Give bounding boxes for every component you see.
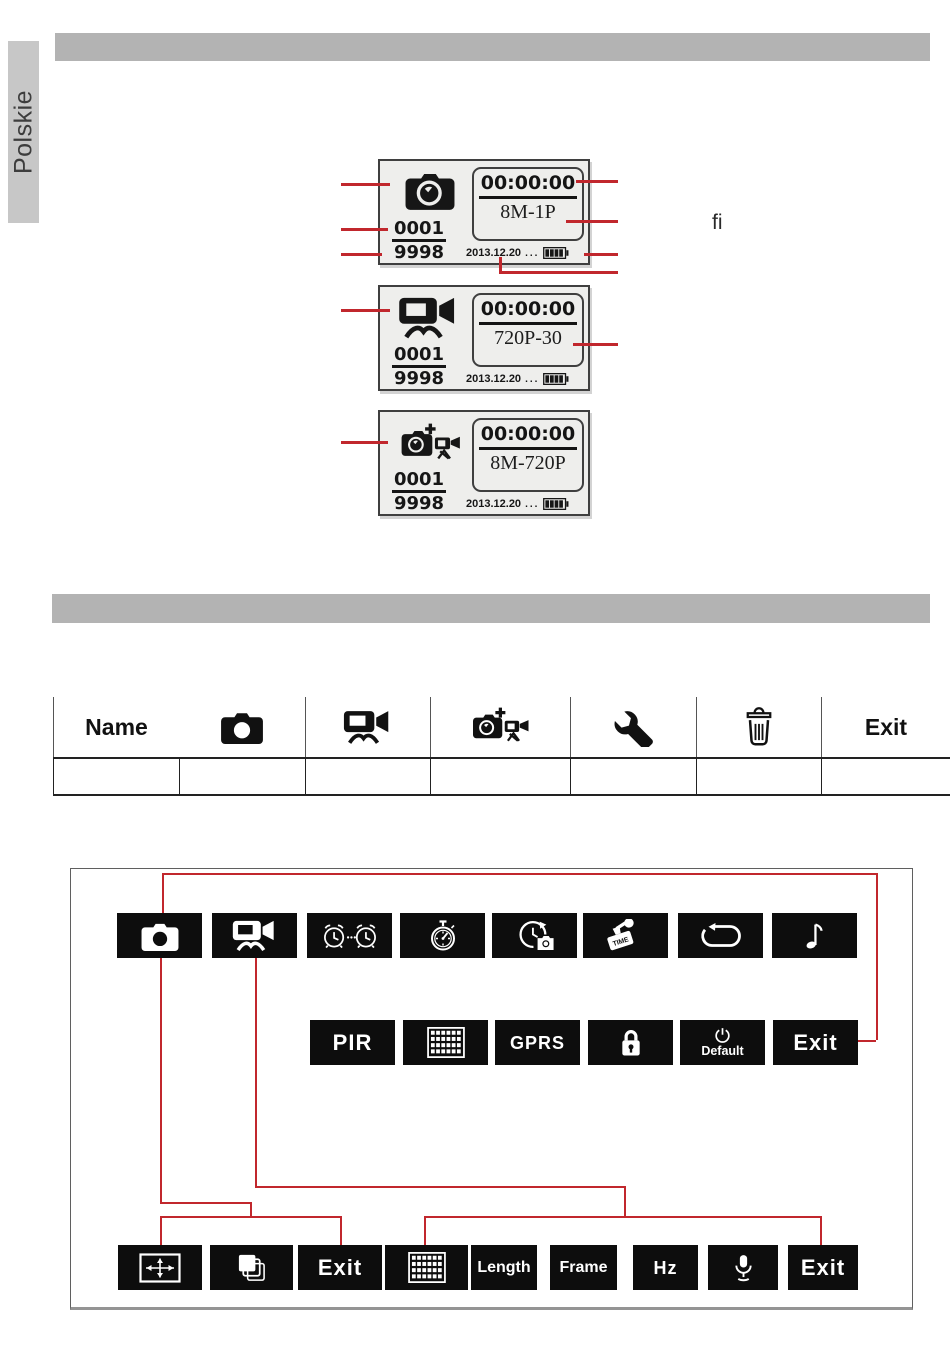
submenu-burst-button [210,1245,293,1290]
menu-photo-button [117,913,202,958]
connector-line [255,1186,625,1188]
power-icon [714,1027,731,1044]
image-counter: 0001 9998 [392,219,446,262]
time-display: 00:00:00 [481,423,576,445]
table-header-settings [570,697,696,757]
alarm-clocks-icon [322,921,378,950]
submenu-frame-button: Frame [550,1245,617,1290]
table-cell [821,759,950,794]
connector-line [255,958,257,1186]
column-label: Exit [865,714,907,741]
table-cell [570,759,696,794]
wrench-icon [613,707,655,747]
info-box: 00:00:00 8M-1P [472,167,584,241]
table-cell [430,759,570,794]
date-display: 2013.12.20 [466,498,521,510]
info-box: 00:00:00 720P-30 [472,293,584,367]
menu-timer-button [400,913,485,958]
camera-icon [219,710,265,744]
grid-icon [408,1252,446,1283]
connector-line [162,873,876,875]
connector-line [876,873,878,1040]
battery-icon [543,247,569,259]
submenu-exit2-button: Exit [788,1245,858,1290]
camera-plus-video-icon [394,423,468,465]
trash-icon [742,707,776,747]
camera-icon [404,170,456,210]
tile-label: Hz [654,1259,678,1277]
battery-icon [543,498,569,510]
callout-line [341,253,382,256]
connector-line [160,1202,251,1204]
table-header-delete [696,697,821,757]
submenu-timetable-button [385,1245,468,1290]
burst-icon [236,1252,267,1283]
table-header-exit: Exit [821,697,950,757]
table-cell [53,759,179,794]
tile-label: Frame [559,1260,607,1276]
callout-line [566,220,618,223]
music-note-icon [805,921,824,950]
loop-icon [700,923,742,949]
menu-timestamp-button: TIME [583,913,668,958]
counter-total: 9998 [392,242,446,262]
menu-cycle-button [678,913,763,958]
callout-line [341,441,388,444]
video-camera-icon [397,294,461,341]
mode-display: 8M-1P [500,201,556,224]
section-bar-top [55,33,930,61]
connector-line [340,1216,342,1245]
camera-plus-video-icon [469,707,533,747]
lcd-screen-photo-video: 0001 9998 00:00:00 8M-720P 2013.12.20 ..… [378,410,590,516]
info-box: 00:00:00 8M-720P [472,418,584,492]
menu-video-button [212,913,297,958]
connector-line [160,958,162,1202]
menu-pir-button: PIR [310,1020,395,1065]
lcd-screen-video: 0001 9998 00:00:00 720P-30 2013.12.20 ..… [378,285,590,391]
table-header-photo [179,697,305,757]
submenu-mic-button [708,1245,778,1290]
menu-timelapse-button [492,913,577,958]
table-empty-row [53,757,950,796]
connector-line [858,1040,876,1042]
tile-label: Exit [801,1257,845,1279]
stopwatch-icon [428,919,458,952]
menu-exit-button: Exit [773,1020,858,1065]
counter-current: 0001 [392,470,446,493]
mode-display: 8M-720P [490,452,566,475]
callout-line [573,343,618,346]
status-line: 2013.12.20 ... [466,247,569,259]
section-bar-middle [52,594,930,623]
menu-default-button: Default [680,1020,765,1065]
table-cell [305,759,430,794]
date-display: 2013.12.20 [466,247,521,259]
ellipsis: ... [525,499,539,510]
image-counter: 0001 9998 [392,345,446,388]
callout-line [341,228,388,231]
submenu-hz-button: Hz [633,1245,698,1290]
counter-total: 9998 [392,493,446,513]
submenu-length-button: Length [471,1245,537,1290]
connector-line [424,1216,426,1245]
callout-line [341,183,390,186]
timelapse-camera-icon [514,919,556,952]
resolution-icon [139,1253,181,1283]
tile-label: Exit [793,1032,837,1054]
time-display: 00:00:00 [481,298,576,320]
grid-icon [427,1027,465,1058]
tile-label: Default [701,1045,743,1058]
microphone-icon [733,1253,754,1283]
lcd-screen-photo: 0001 9998 00:00:00 8M-1P 2013.12.20 ... [378,159,590,265]
table-header-video [305,697,430,757]
ellipsis: ... [525,248,539,259]
time-stamp-icon: TIME [604,919,648,953]
video-camera-icon [231,918,279,953]
connector-line [624,1186,626,1216]
tile-label: GPRS [510,1034,565,1052]
callout-line [341,309,390,312]
video-camera-icon [342,708,394,746]
tile-label: Exit [318,1257,362,1279]
status-line: 2013.12.20 ... [466,498,569,510]
connector-line [160,1216,341,1218]
counter-current: 0001 [392,345,446,368]
tile-label: Length [477,1260,530,1276]
callout-line [584,253,618,256]
language-tab-label: Polskie [9,90,38,174]
table-cell [696,759,821,794]
language-tab: Polskie [8,41,39,223]
time-display: 00:00:00 [481,172,576,194]
ellipsis: ... [525,374,539,385]
table-header-name: Name [53,697,179,757]
tile-label: PIR [333,1032,373,1054]
connector-line [160,1216,162,1245]
divider [479,447,576,450]
column-label: Name [85,714,148,741]
mode-display: 720P-30 [494,327,562,350]
callout-line [499,271,618,274]
submenu-resolution-button [118,1245,202,1290]
counter-total: 9998 [392,368,446,388]
icon-legend-table: Name Exit [53,697,950,796]
camera-icon [140,921,180,951]
image-counter: 0001 9998 [392,470,446,513]
table-header-photo-video [430,697,570,757]
menu-lock-button [588,1020,673,1065]
callout-line [576,180,618,183]
battery-icon [543,373,569,385]
table-cell [179,759,305,794]
menu-gprs-button: GPRS [495,1020,580,1065]
divider [479,322,576,325]
divider [479,196,576,199]
stray-text: fi [712,211,723,235]
connector-line [250,1202,252,1216]
menu-delay-button [307,913,392,958]
connector-line [424,1216,821,1218]
lock-icon [618,1026,644,1059]
connector-line [820,1216,822,1245]
manual-page: Polskie 0001 9998 00:00:00 8M-1P 2013.12… [0,0,950,1364]
connector-line [162,873,164,913]
submenu-exit-button: Exit [298,1245,382,1290]
status-line: 2013.12.20 ... [466,373,569,385]
table-header-row: Name Exit [53,697,950,757]
menu-timetable-button [403,1020,488,1065]
menu-sound-button [772,913,857,958]
counter-current: 0001 [392,219,446,242]
date-display: 2013.12.20 [466,373,521,385]
